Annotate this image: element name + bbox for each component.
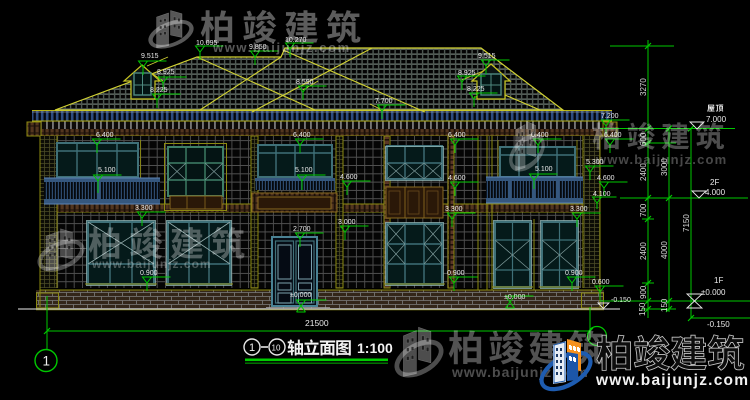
svg-text:8.225: 8.225 (150, 87, 168, 94)
svg-text:1: 1 (249, 342, 255, 354)
svg-text:6.400: 6.400 (448, 132, 466, 139)
svg-text:www.baijunjz.com: www.baijunjz.com (595, 152, 727, 167)
svg-text:4000: 4000 (660, 241, 669, 259)
svg-text:3.300: 3.300 (570, 206, 588, 213)
svg-text:7.000: 7.000 (706, 115, 727, 124)
svg-text:0.900: 0.900 (565, 270, 583, 277)
svg-text:4.600: 4.600 (597, 175, 615, 182)
svg-text:7150: 7150 (682, 214, 691, 232)
svg-text:-0.150: -0.150 (707, 320, 730, 329)
svg-text:3270: 3270 (639, 78, 648, 96)
svg-text:700: 700 (639, 203, 648, 217)
svg-text:0.600: 0.600 (592, 279, 610, 286)
svg-text:3.300: 3.300 (445, 206, 463, 213)
svg-text:4.100: 4.100 (593, 191, 611, 198)
svg-text:4.600: 4.600 (448, 175, 466, 182)
svg-text:4.000: 4.000 (705, 188, 726, 197)
svg-text:5.100: 5.100 (535, 166, 553, 173)
svg-text:9.515: 9.515 (141, 53, 159, 60)
svg-text:www.baijunjz.com: www.baijunjz.com (212, 40, 351, 55)
svg-text:900: 900 (639, 285, 648, 299)
svg-text:6.400: 6.400 (293, 132, 311, 139)
svg-text:±0.000: ±0.000 (701, 288, 726, 297)
svg-text:7.200: 7.200 (601, 113, 619, 120)
svg-text:8.225: 8.225 (467, 86, 485, 93)
svg-text:www.baijunjz.com: www.baijunjz.com (595, 372, 748, 389)
svg-text:2F: 2F (710, 178, 719, 187)
svg-text:±0.000: ±0.000 (290, 292, 311, 299)
svg-text:21500: 21500 (305, 318, 329, 328)
svg-text:4.600: 4.600 (340, 174, 358, 181)
svg-text:3.300: 3.300 (135, 205, 153, 212)
svg-text:1: 1 (43, 354, 51, 369)
svg-text:0.900: 0.900 (140, 270, 158, 277)
svg-text:150: 150 (638, 302, 647, 316)
svg-text:7.700: 7.700 (375, 98, 393, 105)
svg-text:1:100: 1:100 (357, 340, 393, 356)
svg-text:±0.000: ±0.000 (504, 294, 525, 301)
svg-text:2400: 2400 (639, 242, 648, 260)
svg-text:10: 10 (272, 344, 281, 353)
svg-text:5.100: 5.100 (98, 167, 116, 174)
svg-text:-0.150: -0.150 (611, 297, 631, 304)
svg-text:3.000: 3.000 (338, 219, 356, 226)
svg-text:1F: 1F (714, 276, 723, 285)
svg-text:5.100: 5.100 (295, 167, 313, 174)
svg-text:www.baijunjz.com: www.baijunjz.com (91, 257, 212, 271)
svg-text:6.400: 6.400 (96, 132, 114, 139)
svg-text:8.925: 8.925 (157, 69, 175, 76)
svg-text:8.590: 8.590 (296, 79, 314, 86)
svg-text:2.700: 2.700 (293, 226, 311, 233)
svg-text:9.515: 9.515 (478, 53, 496, 60)
svg-text:8.925: 8.925 (458, 70, 476, 77)
svg-text:150: 150 (660, 298, 669, 312)
svg-text:0.900: 0.900 (447, 270, 465, 277)
